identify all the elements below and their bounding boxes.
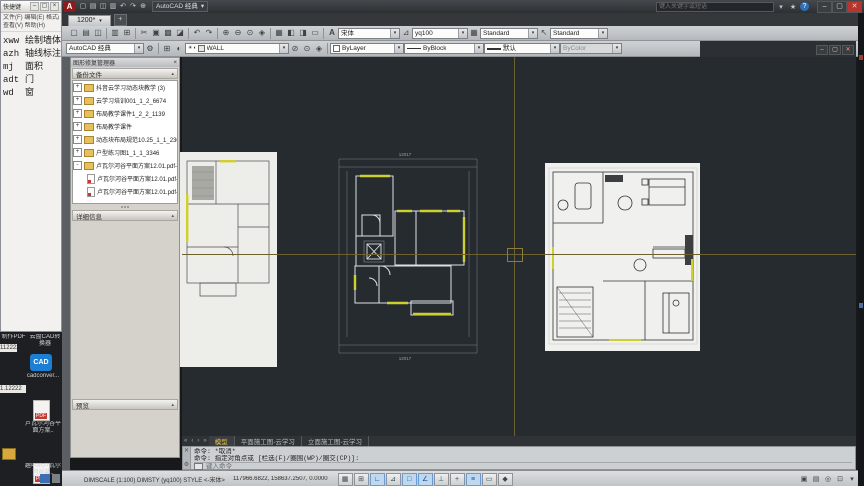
expander-icon[interactable]: -: [73, 161, 82, 170]
notepad-close-button[interactable]: ×: [50, 2, 59, 11]
workspace-switch-icon[interactable]: ⊡: [834, 474, 846, 485]
qa-undo-icon[interactable]: ↶: [118, 1, 128, 12]
plot-icon[interactable]: ▥: [109, 27, 121, 39]
qa-save-icon[interactable]: ◫: [98, 1, 108, 12]
details-empty-area: [71, 222, 179, 398]
cad-converter-icon[interactable]: CAD: [30, 354, 52, 371]
notepad-titlebar[interactable]: 快捷键 – ▢ ×: [1, 1, 61, 13]
tree-item-label: 卢瓦尔河谷平面方案12.01.pdf-2018-1: [96, 161, 177, 170]
layer-states-icon[interactable]: ◐: [173, 43, 185, 55]
model-space-canvas[interactable]: [182, 57, 856, 436]
table-style-icon[interactable]: ▦: [468, 27, 480, 39]
shortcut-desc: 窗: [25, 88, 34, 98]
doc-close-button[interactable]: ✕: [842, 45, 854, 55]
linetype-sample: [407, 48, 421, 49]
cad-converter-label[interactable]: cadconver...: [24, 373, 62, 380]
command-close-icon[interactable]: ✕: [184, 448, 189, 454]
folder-icon: [84, 97, 94, 105]
expander-icon[interactable]: +: [73, 148, 82, 157]
desktop-strip: 制作PDF 云盘CAD转换器 112222 CAD cadconver... 1…: [0, 332, 62, 486]
mleader-style-value: Standard: [553, 29, 579, 38]
transparency-toggle[interactable]: ▭: [482, 473, 497, 486]
collapse-icon[interactable]: ▴: [171, 213, 174, 219]
cut-icon[interactable]: ✂: [138, 27, 150, 39]
qa-add-icon[interactable]: ⊕: [138, 1, 148, 12]
command-window[interactable]: ✕ ⚙ 命令: *取消* 命令: 指定对角点或 [栏选(F)/圈围(WP)/圈交…: [182, 446, 856, 470]
make-layer-current-icon[interactable]: ⊘: [289, 43, 301, 55]
notepad-menu-line2[interactable]: 查看(V) 帮助(H): [3, 22, 59, 30]
qa-open-icon[interactable]: ▤: [88, 1, 98, 12]
tab-model[interactable]: 模型: [209, 436, 235, 446]
file-tabs-bar: 1200* ▾ +: [62, 13, 864, 26]
lineweight-toggle[interactable]: ≡: [466, 473, 481, 486]
dyn-toggle[interactable]: +: [450, 473, 465, 486]
doc-minimize-button[interactable]: –: [816, 45, 828, 55]
chevron-down-icon: ▾: [390, 29, 399, 38]
workspace-combo[interactable]: AutoCAD 经典▾: [66, 43, 144, 54]
desktop-label-chip[interactable]: 112222: [0, 344, 17, 352]
floor-plan-right[interactable]: [545, 163, 700, 351]
tab-last-icon[interactable]: »: [201, 438, 208, 444]
notepad-menu-line1[interactable]: 文件(F) 编辑(E) 格式(O): [3, 14, 59, 22]
qa-plot-icon[interactable]: ▥: [108, 1, 118, 12]
copy-icon[interactable]: ▣: [150, 27, 162, 39]
preview-icon[interactable]: ⊞: [121, 27, 133, 39]
undo-icon[interactable]: ↶: [191, 27, 203, 39]
model-space-icon[interactable]: ▣: [798, 474, 810, 485]
mleader-style-combo[interactable]: Standard▾: [550, 28, 608, 39]
new-icon[interactable]: ▢: [68, 27, 80, 39]
expander-icon[interactable]: +: [73, 83, 82, 92]
backup-files-label: 备份文件: [76, 69, 102, 79]
layer-on-icon: ☀: [188, 44, 192, 53]
chevron-down-icon: ▾: [394, 44, 403, 53]
sysvar-readout: DIMSCALE (1:100) DIMSTY (yq100) STYLE <-…: [84, 475, 225, 484]
text-style-combo[interactable]: 宋体▾: [338, 28, 400, 39]
tree-item-label: 动态块布局规范10.25_1_1_2305.dwg: [96, 135, 177, 144]
shortcut-key: xww: [3, 35, 25, 48]
file-tab-label: 1200*: [77, 16, 95, 26]
window-minimize-button[interactable]: –: [817, 1, 832, 13]
notepad-minimize-button[interactable]: –: [30, 2, 39, 11]
collapse-icon[interactable]: ▴: [171, 402, 174, 408]
notepad-maximize-button[interactable]: ▢: [40, 2, 49, 11]
layout-tab-bar: « ‹ › » 模型 平面施工图-云学习 立面施工图-云学习: [182, 436, 856, 446]
doc-restore-button[interactable]: ▢: [829, 45, 841, 55]
ortho-toggle[interactable]: ∟: [370, 473, 385, 486]
layer-previous-icon[interactable]: ⊙: [301, 43, 313, 55]
layout-icon[interactable]: ▤: [810, 474, 822, 485]
tree-item-label: 抖音云学习动态块教学 (3): [96, 83, 165, 92]
desktop-icon-label[interactable]: 云盘CAD转换器: [29, 334, 61, 348]
command-window-strip: ✕ ⚙: [183, 447, 191, 469]
chevron-down-icon: ▾: [99, 16, 102, 26]
floor-plan-left[interactable]: [180, 152, 277, 367]
zoom-out-icon[interactable]: ⊖: [232, 27, 244, 39]
chevron-down-icon: ▾: [134, 44, 143, 53]
plotstyle-combo: ByColor ▾: [560, 43, 622, 54]
folder-icon: [84, 123, 94, 131]
screen: 快捷键 – ▢ × 文件(F) 编辑(E) 格式(O) 查看(V) 帮助(H) …: [0, 0, 864, 486]
save-icon[interactable]: ◫: [92, 27, 104, 39]
coordinates-readout[interactable]: 117966.6822, 158637.2507, 0.0000: [233, 476, 328, 482]
standard-toolbar: ▢ ▤ ◫ ▥ ⊞ ✂ ▣ ▩ ◪ ↶ ↷ ⊕ ⊖ ⊙ ◈ ▦ ◧ ◨ ▭ A …: [62, 26, 864, 41]
lineweight-sample: [487, 48, 501, 50]
otrack-toggle[interactable]: ∠: [418, 473, 433, 486]
chevron-down-icon: ▾: [598, 29, 607, 38]
taskbar-icon[interactable]: [40, 474, 50, 483]
pdf-file-label[interactable]: 卢瓦尔河谷平面方案..: [24, 421, 62, 435]
crosshair-pickbox: [507, 248, 523, 262]
dim-label: 12017: [399, 152, 412, 157]
shortcut-desc: 面积: [25, 62, 43, 72]
shortcut-key: azh: [3, 48, 25, 61]
shortcut-key: mj: [3, 61, 25, 74]
palette-splitter[interactable]: [71, 204, 179, 209]
chevron-down-icon: ▾: [201, 2, 204, 11]
shortcuts-notepad-window[interactable]: 快捷键 – ▢ × 文件(F) 编辑(E) 格式(O) 查看(V) 帮助(H) …: [0, 0, 62, 332]
text-style-icon[interactable]: A: [326, 27, 338, 39]
backup-files-header[interactable]: 备份文件 ▴: [72, 68, 178, 79]
tree-item[interactable]: -卢瓦尔河谷平面方案12.01.pdf-2018-1: [73, 159, 177, 172]
search-dropdown-icon[interactable]: ▾: [776, 3, 786, 11]
shortcut-key: adt: [3, 74, 25, 87]
desktop-right-sliver: [858, 13, 864, 486]
new-tab-button[interactable]: +: [114, 14, 127, 26]
tree-item-label: 卢瓦尔河谷平面方案12.01.pdf-201: [97, 174, 177, 183]
folder-icon: [84, 84, 94, 92]
linetype-value: ByBlock: [423, 44, 446, 53]
folder-icon: [84, 110, 94, 118]
tree-item-label: 布局教学课件1_2_2_1139: [96, 109, 165, 118]
tree-item[interactable]: +抖音云学习动态块教学 (3): [73, 81, 177, 94]
match-icon[interactable]: ◪: [174, 27, 186, 39]
file-tab-1200[interactable]: 1200* ▾: [68, 15, 111, 26]
dim-style-icon[interactable]: ⊿: [400, 27, 412, 39]
layer-color-swatch: [198, 45, 205, 52]
dim-style-combo[interactable]: yq100▾: [412, 28, 468, 39]
quickprops-toggle[interactable]: ◆: [498, 473, 513, 486]
osnap-toggle[interactable]: □: [402, 473, 417, 486]
acad-logo[interactable]: A: [64, 1, 75, 12]
expander-icon[interactable]: +: [73, 122, 82, 131]
polar-toggle[interactable]: ⊿: [386, 473, 401, 486]
status-bar: DIMSCALE (1:100) DIMSTY (yq100) STYLE <-…: [62, 470, 864, 486]
chevron-down-icon: ▾: [550, 44, 559, 53]
desktop-mini-icon: [859, 55, 863, 60]
pdf-badge: PDF: [35, 413, 47, 419]
dim-style-value: yq100: [415, 29, 433, 38]
tree-item[interactable]: +布局教学课件: [73, 120, 177, 133]
mleader-style-icon[interactable]: ↖: [538, 27, 550, 39]
pdf-file-icon[interactable]: PDF: [33, 400, 50, 421]
folder-icon: [84, 149, 94, 157]
designcenter-icon[interactable]: ◧: [285, 27, 297, 39]
notepad-menubar[interactable]: 文件(F) 编辑(E) 格式(O) 查看(V) 帮助(H): [1, 13, 61, 32]
command-placeholder: 键入命令: [206, 463, 232, 470]
folder-icon[interactable]: [2, 448, 16, 460]
favorites-icon[interactable]: ★: [788, 3, 798, 11]
notepad-title: 快捷键: [3, 2, 21, 11]
details-label: 详细信息: [76, 211, 102, 221]
zoom-window-icon[interactable]: ◈: [256, 27, 268, 39]
redo-icon[interactable]: ↷: [203, 27, 215, 39]
command-customize-icon[interactable]: ⚙: [184, 462, 189, 468]
dim-label: 12017: [399, 356, 412, 361]
tree-item-label: 户型练习图1_1_1_3346: [96, 148, 159, 157]
folder-icon: [84, 162, 94, 170]
zoom-realtime-icon[interactable]: ⊙: [244, 27, 256, 39]
qa-new-icon[interactable]: ▢: [78, 1, 88, 12]
drawing-recovery-palette[interactable]: 图形修复管理器 × 备份文件 ▴ +抖音云学习动态块教学 (3) +云学习培训0…: [70, 57, 180, 458]
plotstyle-value: ByColor: [563, 44, 586, 53]
workspace-settings-icon[interactable]: ⚙: [144, 43, 156, 55]
table-style-combo[interactable]: Standard▾: [480, 28, 538, 39]
expander-icon[interactable]: +: [73, 96, 82, 105]
shortcut-desc: 绘制墙体: [25, 36, 61, 46]
workspace-switcher[interactable]: AutoCAD 经典 ▾: [152, 1, 208, 12]
backup-files-tree[interactable]: +抖音云学习动态块教学 (3) +云学习培训001_1_2_6674 +布局教学…: [72, 80, 178, 204]
collapse-icon[interactable]: ▴: [171, 71, 174, 77]
color-swatch: [333, 45, 340, 52]
snap-toggle[interactable]: ▦: [338, 473, 353, 486]
window-close-button[interactable]: ✕: [847, 1, 862, 13]
paste-icon[interactable]: ▩: [162, 27, 174, 39]
workspace-name: AutoCAD 经典: [156, 2, 198, 11]
pdf-doc-icon: [87, 174, 95, 184]
palette-title: 图形修复管理器: [73, 58, 115, 67]
color-combo[interactable]: ByLayer ▾: [330, 43, 404, 54]
palette-titlebar[interactable]: 图形修复管理器 ×: [71, 58, 179, 67]
tree-item[interactable]: 卢瓦尔河谷平面方案12.01.pdf-201: [73, 185, 177, 198]
linetype-combo[interactable]: ByBlock ▾: [404, 43, 484, 54]
toolpalette-icon[interactable]: ◨: [297, 27, 309, 39]
pan-icon[interactable]: ⊕: [220, 27, 232, 39]
qa-redo-icon[interactable]: ↷: [128, 1, 138, 12]
command-history-line: 命令: *取消*: [194, 448, 852, 455]
tree-item-label: 云学习培训001_1_2_6674: [96, 96, 166, 105]
tree-item-label: 布局教学课件: [96, 122, 132, 131]
window-restore-button[interactable]: ▢: [832, 1, 847, 13]
help-icon[interactable]: ?: [800, 2, 809, 11]
lineweight-combo[interactable]: 默认 ▾: [484, 43, 560, 54]
tree-item-label: 卢瓦尔河谷平面方案12.01.pdf-201: [97, 187, 177, 196]
palette-dock-strip: [62, 57, 70, 470]
floor-plan-middle[interactable]: 12017 12017: [317, 147, 493, 379]
infocenter-search-input[interactable]: [656, 2, 774, 12]
workspace-value: AutoCAD 经典: [69, 44, 111, 53]
status-menu-icon[interactable]: ▾: [846, 474, 858, 485]
details-header[interactable]: 详细信息 ▴: [72, 210, 178, 221]
preview-header[interactable]: 预览 ▴: [72, 399, 178, 410]
expander-icon[interactable]: +: [73, 109, 82, 118]
layer-freeze-icon: ◐: [193, 44, 196, 53]
lineweight-value: 默认: [503, 44, 516, 53]
open-icon[interactable]: ▤: [80, 27, 92, 39]
folder-icon: [84, 136, 94, 144]
ducs-toggle[interactable]: ⊥: [434, 473, 449, 486]
chevron-down-icon: ▾: [612, 44, 621, 53]
layer-manager-icon[interactable]: ⊞: [161, 43, 173, 55]
tree-item[interactable]: +动态块布局规范10.25_1_1_2305.dwg: [73, 133, 177, 146]
tab-first-icon[interactable]: «: [182, 438, 189, 444]
tree-item[interactable]: +户型练习图1_1_1_3346: [73, 146, 177, 159]
color-value: ByLayer: [342, 44, 366, 53]
crosshair-vertical: [514, 57, 515, 436]
shortcut-key: wd: [3, 87, 25, 100]
layer-combo[interactable]: ☀ ◐ WALL ▾: [185, 43, 289, 54]
acad-titlebar[interactable]: A ▢ ▤ ◫ ▥ ↶ ↷ ⊕ AutoCAD 经典 ▾ ▾ ★ ? – ▢ ✕: [62, 0, 864, 13]
keyboard-icon: [194, 463, 203, 470]
preview-label: 预览: [76, 400, 89, 410]
tab-elevation-layout[interactable]: 立面施工图-云学习: [302, 436, 369, 446]
pdf-doc-icon: [87, 187, 95, 197]
table-style-value: Standard: [483, 29, 509, 38]
palette-close-icon[interactable]: ×: [173, 60, 177, 66]
tree-item[interactable]: +布局教学课件1_2_2_1139: [73, 107, 177, 120]
chevron-down-icon: ▾: [528, 29, 537, 38]
expander-icon[interactable]: +: [73, 135, 82, 144]
desktop-mini-icon: [859, 303, 863, 308]
chevron-down-icon: ▾: [279, 44, 288, 53]
properties-icon[interactable]: ▦: [273, 27, 285, 39]
layer-isolate-icon[interactable]: ◈: [313, 43, 325, 55]
desktop-label-chip[interactable]: 1.12222: [0, 385, 26, 393]
command-history-line: 命令: 指定对角点或 [栏选(F)/圈围(WP)/圈交(CP)]:: [194, 455, 852, 462]
shortcut-desc: 门: [25, 75, 34, 85]
shortcut-desc: 轴线标注: [25, 49, 61, 59]
tree-item[interactable]: 卢瓦尔河谷平面方案12.01.pdf-201: [73, 172, 177, 185]
toolbar-dock-gap: – ▢ ✕: [700, 41, 856, 57]
tab-plan-layout[interactable]: 平面施工图-云学习: [235, 436, 302, 446]
layer-value: WALL: [207, 44, 224, 53]
taskbar-icon[interactable]: [52, 474, 60, 483]
command-input[interactable]: 键入命令: [194, 462, 852, 470]
chevron-down-icon: ▾: [474, 44, 483, 53]
tree-item[interactable]: +云学习培训001_1_2_6674: [73, 94, 177, 107]
sheetset-icon[interactable]: ▭: [309, 27, 321, 39]
notepad-text[interactable]: xww绘制墙体 azh轴线标注 mj面积 adt门 wd窗: [1, 32, 61, 100]
annotation-scale-icon[interactable]: ◎: [822, 474, 834, 485]
chevron-down-icon: ▾: [458, 29, 467, 38]
text-style-value: 宋体: [341, 29, 354, 38]
grid-toggle[interactable]: ⊞: [354, 473, 369, 486]
